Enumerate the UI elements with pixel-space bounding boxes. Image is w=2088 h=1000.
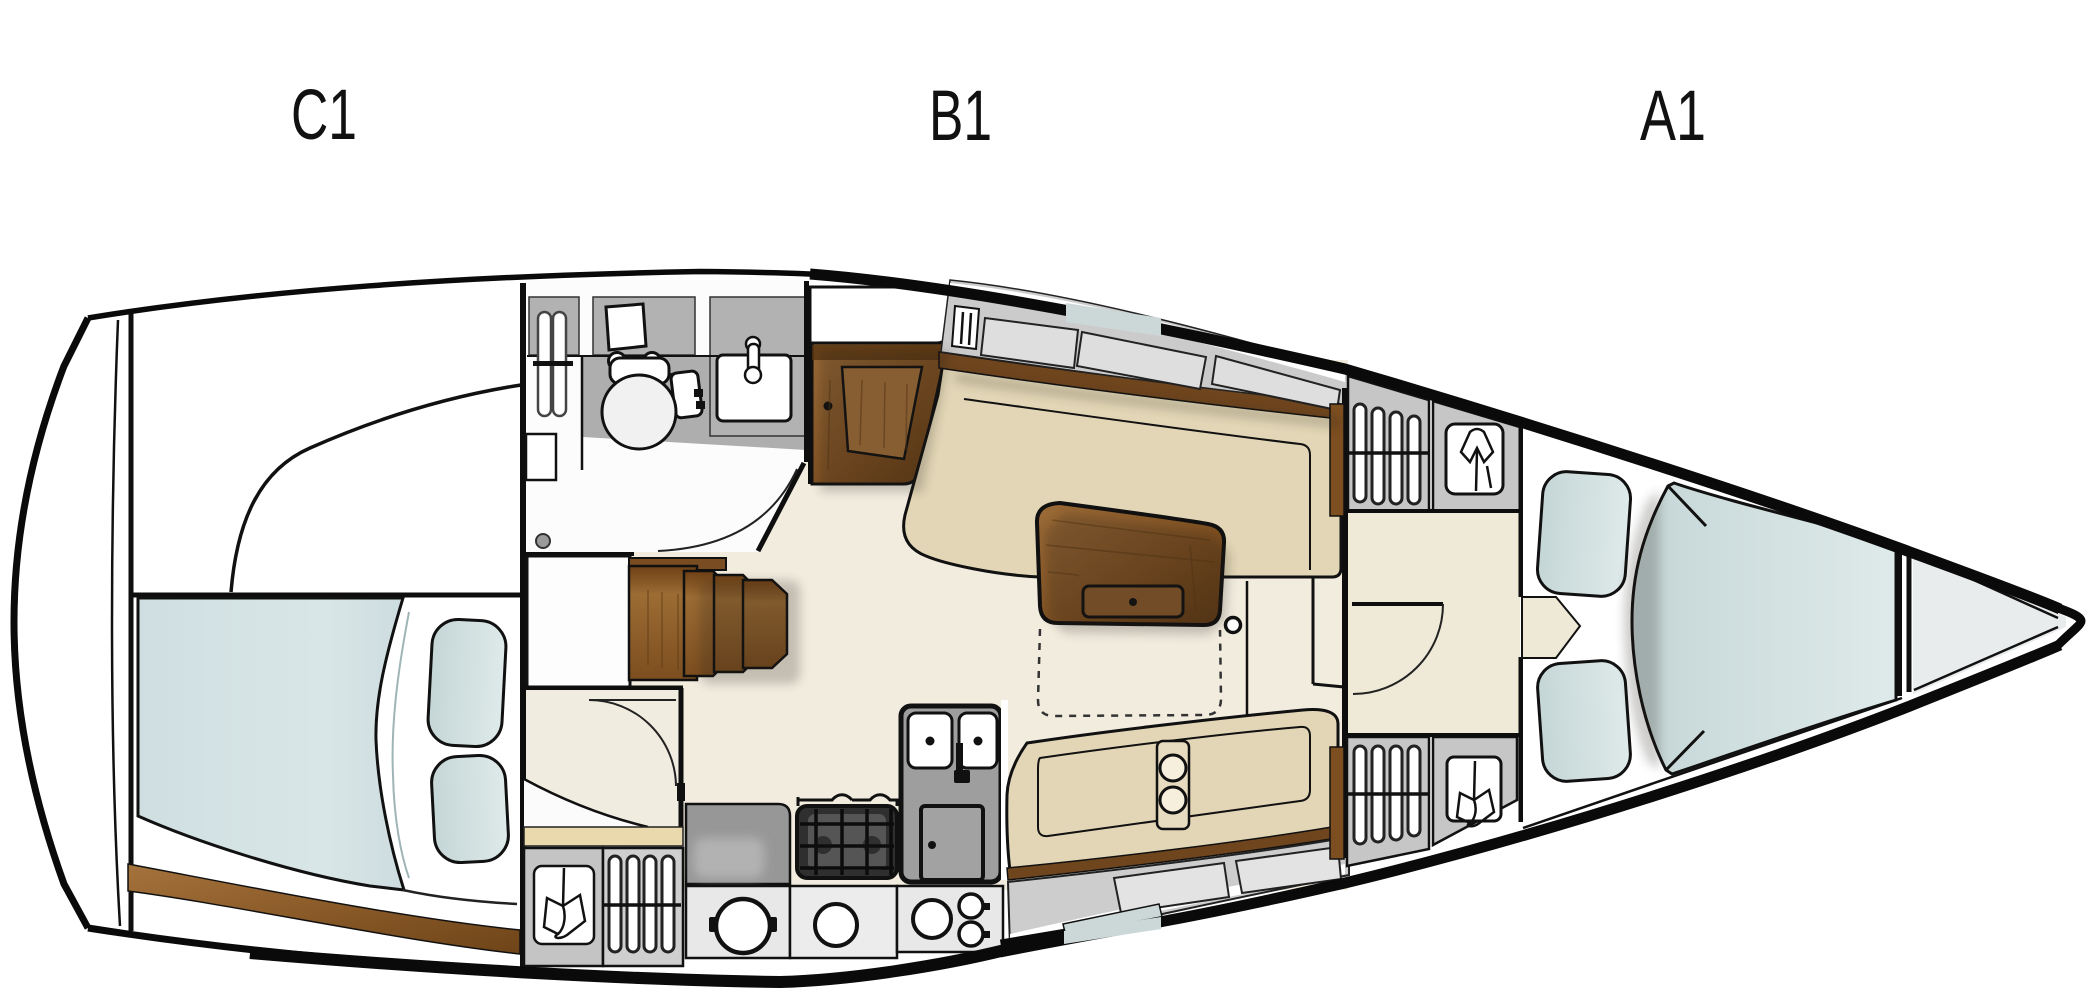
svg-text:A1: A1 bbox=[1640, 77, 1706, 156]
svg-text:C1: C1 bbox=[291, 76, 357, 155]
svg-text:B1: B1 bbox=[929, 77, 992, 156]
